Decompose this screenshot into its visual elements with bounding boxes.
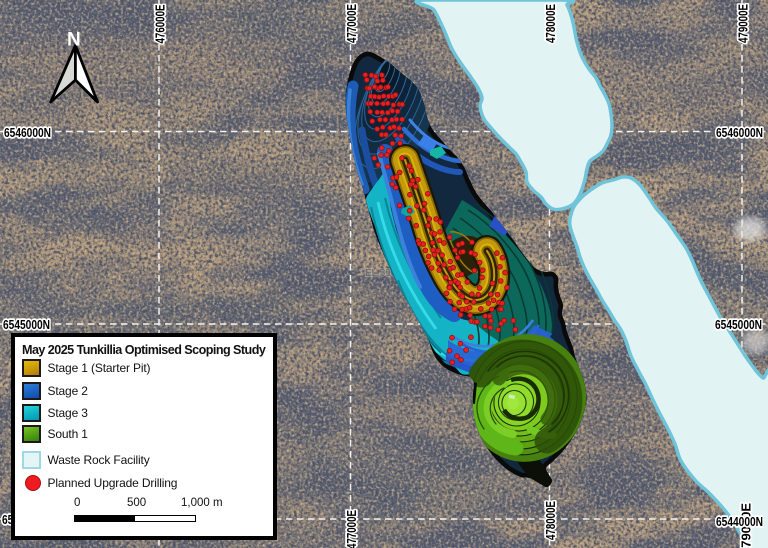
svg-text:478000E: 478000E	[543, 4, 558, 43]
svg-text:478000E: 478000E	[543, 501, 558, 540]
svg-text:6545000N: 6545000N	[715, 317, 762, 332]
svg-text:477000E: 477000E	[344, 510, 359, 548]
svg-text:6546000N: 6546000N	[4, 125, 51, 140]
svg-text:6544000N: 6544000N	[716, 514, 763, 529]
svg-text:479000E: 479000E	[736, 4, 751, 43]
svg-text:6545000N: 6545000N	[3, 317, 50, 332]
svg-text:6546000N: 6546000N	[716, 125, 763, 140]
svg-text:N: N	[67, 30, 81, 51]
svg-text:477000E: 477000E	[344, 4, 359, 43]
svg-text:476000E: 476000E	[153, 4, 168, 43]
